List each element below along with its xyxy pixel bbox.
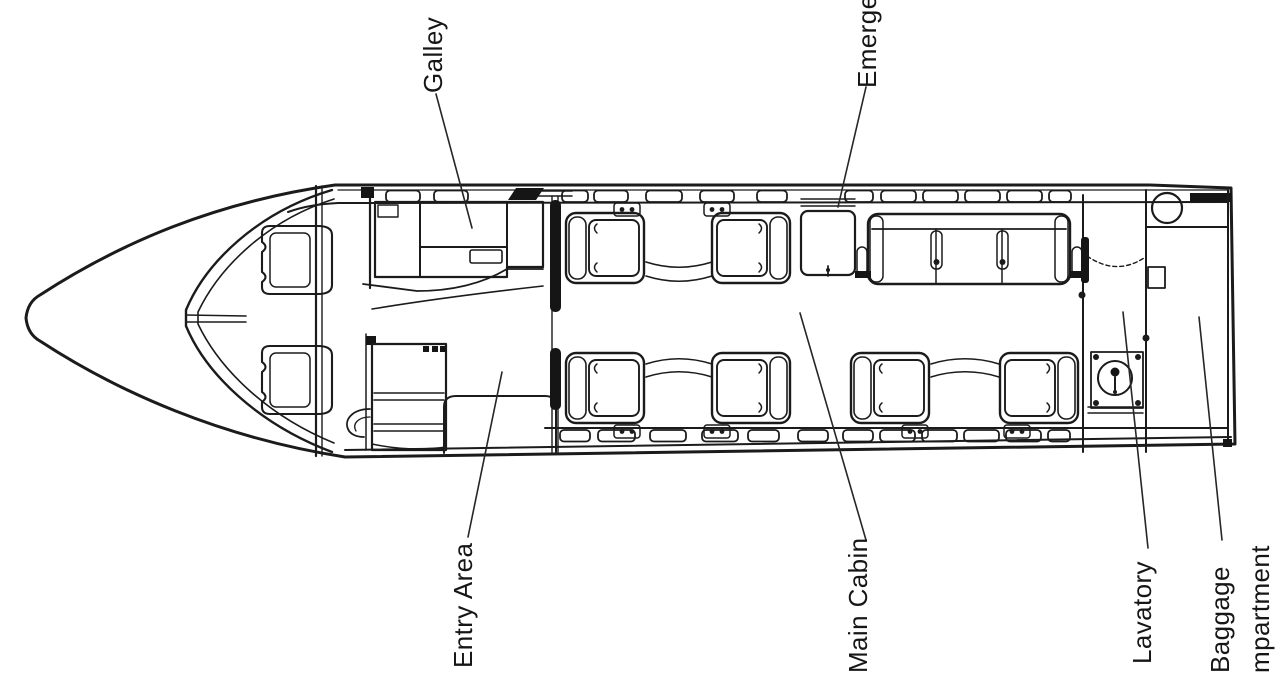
cabin-window xyxy=(798,430,828,442)
cabin-window xyxy=(843,430,873,442)
cabin-window xyxy=(965,191,1000,203)
club-seat-fwd-right xyxy=(712,213,790,283)
baggage-porthole xyxy=(1152,193,1182,223)
partition-door-post-lower xyxy=(550,348,561,410)
aircraft-floor-plan: Galley Emergency Exit Entry Area Main Ca… xyxy=(0,0,1280,673)
cabin-window xyxy=(650,430,686,442)
top-window-band xyxy=(288,188,1228,212)
cabin-window xyxy=(845,191,873,203)
cabin-window xyxy=(1007,191,1042,203)
lavatory-door-swing xyxy=(1087,256,1144,267)
cabin-window xyxy=(748,430,779,442)
windshield-center-post xyxy=(186,315,246,322)
club-seat-rear-right xyxy=(1000,353,1078,423)
entry-closet xyxy=(372,344,446,450)
cockpit xyxy=(186,186,334,456)
label-galley: Galley xyxy=(417,17,449,93)
club-seat-aft-right xyxy=(712,353,790,423)
leader-line-main-cabin xyxy=(800,313,866,540)
airstair-steps xyxy=(374,393,444,431)
cabin-window xyxy=(594,191,628,203)
folding-table-top xyxy=(646,262,712,281)
label-emergency-exit: Emergency Exit xyxy=(851,0,883,88)
leader-line-galley xyxy=(436,94,472,228)
cabin-window xyxy=(700,191,734,203)
cabin-window xyxy=(757,191,787,203)
label-baggage: Baggage xyxy=(1204,566,1236,673)
club-seat-aft-left xyxy=(566,353,644,423)
entry-area xyxy=(347,334,556,453)
cabin-window xyxy=(881,191,916,203)
label-compartment: Compartment xyxy=(1244,545,1276,673)
club-seat-rear-left xyxy=(851,353,929,423)
label-entry-area: Entry Area xyxy=(447,543,479,668)
galley-unit xyxy=(361,187,543,309)
windshield-frame-outer xyxy=(186,190,332,452)
floor-plan-drawing xyxy=(0,0,1280,673)
label-main-cabin: Main Cabin xyxy=(842,537,874,673)
leader-line-lavatory xyxy=(1123,312,1148,548)
entry-floor-mat xyxy=(444,396,556,453)
partition-door-post-upper xyxy=(550,200,561,312)
forward-club-seats xyxy=(566,203,790,438)
windshield-frame-inner xyxy=(198,199,334,443)
divan-three-seat xyxy=(855,214,1086,284)
cabin-window xyxy=(1049,191,1071,203)
leader-lines xyxy=(436,87,1222,548)
baggage-compartment xyxy=(1147,190,1232,447)
emergency-exit xyxy=(801,199,855,276)
club-seat-fwd-left xyxy=(566,213,644,283)
label-lavatory: Lavatory xyxy=(1126,561,1158,664)
cabin-window xyxy=(598,430,635,442)
lavatory xyxy=(1079,190,1150,452)
cabin-window xyxy=(923,191,958,203)
cabin-window xyxy=(646,191,682,203)
cabin-window xyxy=(386,191,420,203)
cabin-window xyxy=(560,430,590,442)
toilet xyxy=(1088,352,1143,413)
aft-club-seats xyxy=(851,353,1078,438)
folding-table-bottom xyxy=(646,359,712,377)
leader-line-emergency-exit xyxy=(838,87,866,207)
folding-table-aft xyxy=(931,359,999,377)
